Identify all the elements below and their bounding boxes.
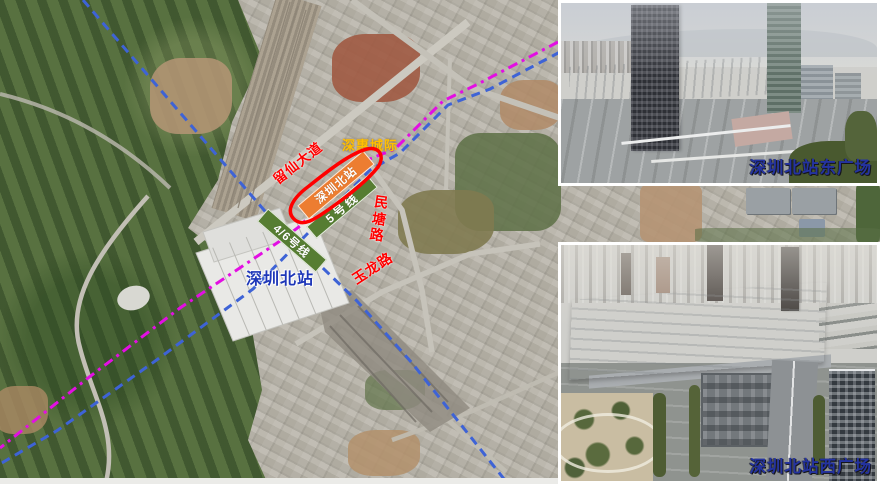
shenhui-intercity-label: 深惠城际 [342, 135, 398, 154]
hill-road [77, 196, 148, 482]
road [446, 58, 450, 190]
road [352, 0, 560, 118]
map-bottom-margin [0, 478, 562, 484]
west-square-label: 深圳北站西广场 [750, 453, 873, 477]
photo-haze-overlay [561, 245, 877, 481]
west-square-photo: 深圳北站西广场 [558, 242, 880, 484]
east-square-label: 深圳北站东广场 [750, 154, 873, 178]
annotated-satellite-figure: 深圳北站 5号线 4/6号线 留仙大道 深惠城际 民塘路 玉龙路 深圳北站 深圳… [0, 0, 880, 484]
station-name-label: 深圳北站 [246, 265, 314, 289]
station-yard [318, 290, 470, 432]
hill-road [0, 94, 170, 188]
east-square-photo: 深圳北站东广场 [558, 0, 880, 186]
